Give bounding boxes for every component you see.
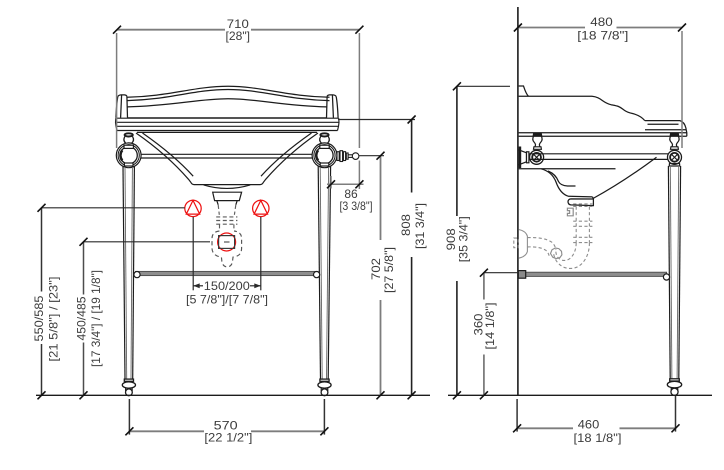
svg-text:150/200: 150/200: [204, 279, 250, 293]
svg-text:460: 460: [578, 418, 600, 432]
svg-text:[28"]: [28"]: [226, 29, 251, 43]
svg-text:[18 7/8"]: [18 7/8"]: [577, 28, 628, 42]
svg-text:[35 3/4"]: [35 3/4"]: [456, 216, 470, 262]
svg-text:550/585: 550/585: [32, 295, 46, 341]
svg-text:[14 1/8"]: [14 1/8"]: [483, 303, 497, 350]
svg-text:[5 7/8"]/[7 7/8"]: [5 7/8"]/[7 7/8"]: [186, 292, 268, 306]
svg-text:702: 702: [369, 258, 383, 280]
svg-text:[31 3/4"]: [31 3/4"]: [413, 203, 427, 249]
svg-text:[18 1/8"]: [18 1/8"]: [574, 431, 622, 445]
svg-text:808: 808: [399, 214, 413, 236]
svg-text:[22 1/2"]: [22 1/2"]: [204, 431, 252, 445]
svg-text:[27 5/8"]: [27 5/8"]: [382, 247, 396, 293]
svg-text:480: 480: [590, 15, 613, 29]
svg-text:450/485: 450/485: [75, 296, 89, 340]
svg-text:[3 3/8"]: [3 3/8"]: [340, 199, 373, 213]
svg-text:[21 5/8"] / [23"]: [21 5/8"] / [23"]: [47, 277, 61, 362]
svg-text:[17 3/4"] / [19 1/8"]: [17 3/4"] / [19 1/8"]: [89, 270, 103, 367]
